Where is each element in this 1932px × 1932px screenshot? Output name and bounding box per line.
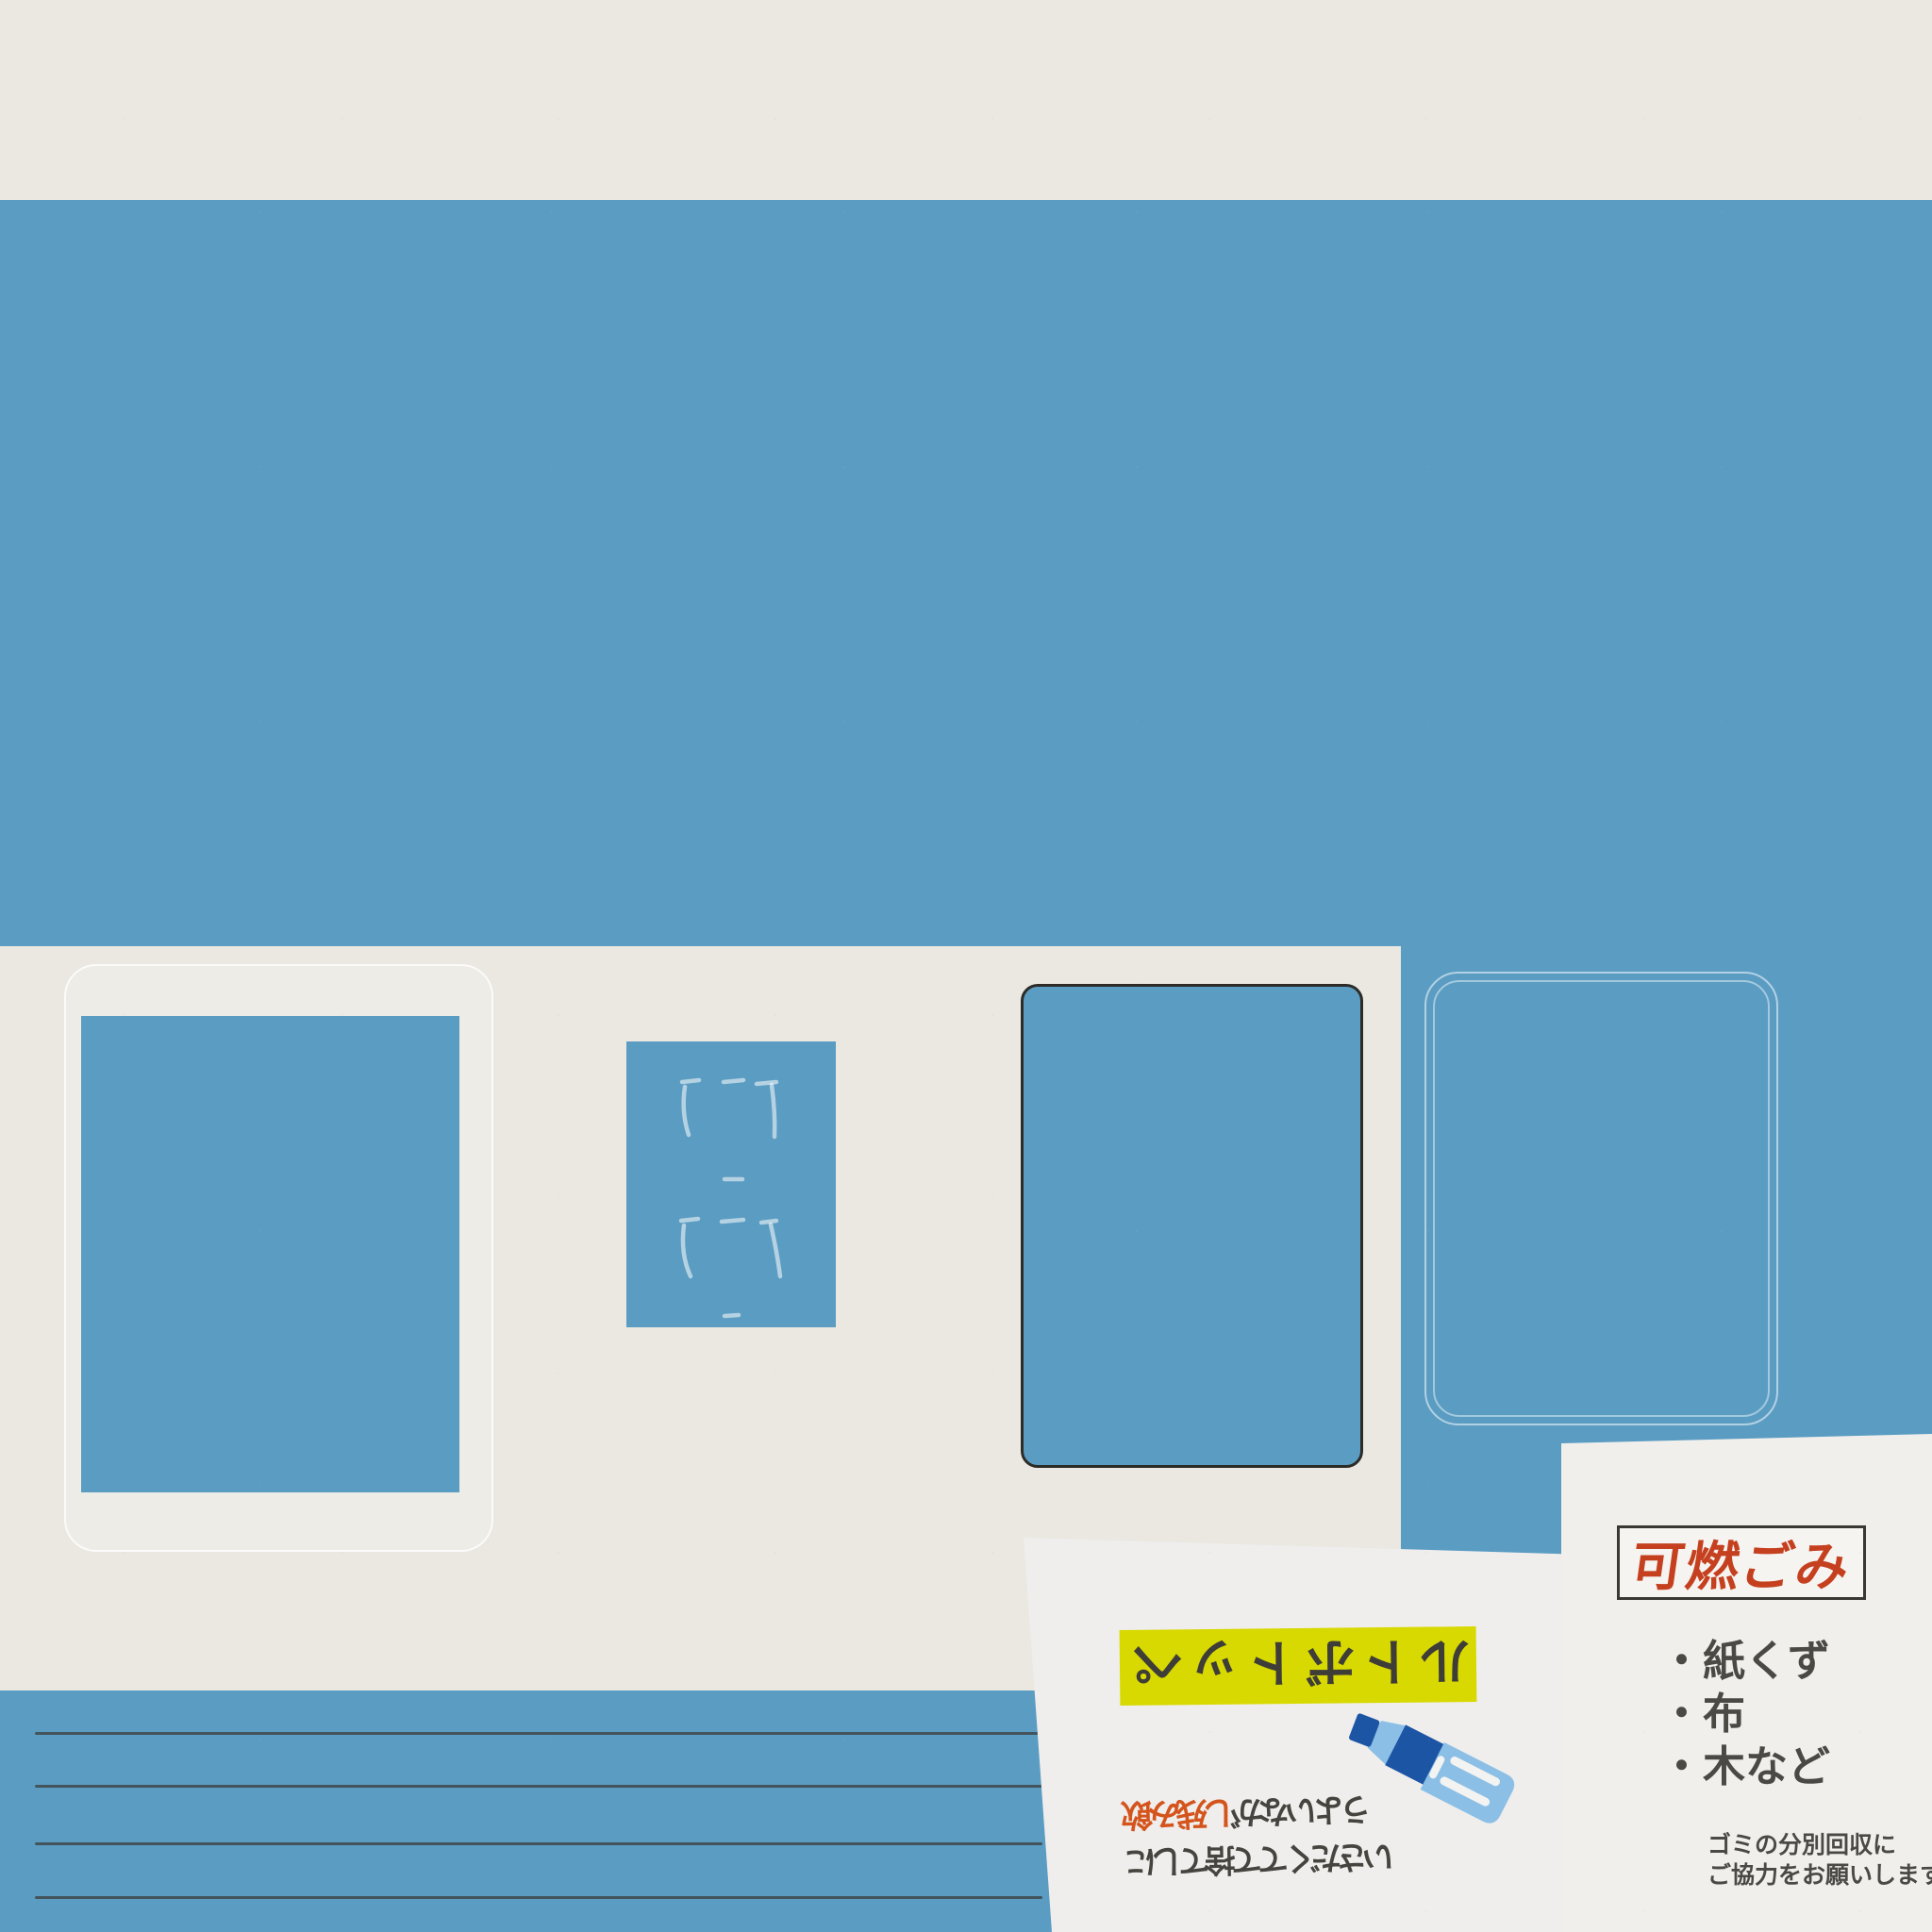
blue-wall-band xyxy=(0,200,1932,946)
pencil-line xyxy=(35,1785,1042,1788)
footer-line1: ゴミの分別回収に xyxy=(1707,1830,1932,1860)
burnable-sign-footer: ゴミの分別回収に ご協力をお願いします xyxy=(1707,1830,1932,1890)
note-highlight: 飲み残し xyxy=(1125,1800,1236,1839)
pet-bottle-icon xyxy=(1343,1709,1541,1870)
list-item: ・木など xyxy=(1660,1732,1830,1785)
pet-bottle-sign-banner: ペットボトル xyxy=(1120,1626,1477,1706)
pet-sign-note-line1: 飲み残しがないよう xyxy=(1124,1789,1372,1841)
pencil-line xyxy=(35,1842,1042,1845)
list-item-label: 木など xyxy=(1703,1742,1830,1790)
pencil-line xyxy=(35,1732,1042,1735)
wall-collage-scene: { "colors": { "wall_blue": "#5b9cc2", "w… xyxy=(0,0,1932,1932)
list-item-label: 布 xyxy=(1703,1690,1745,1738)
chalk-outline-frame xyxy=(1424,972,1778,1425)
pencil-line xyxy=(35,1896,1042,1899)
bullet-dot: ・ xyxy=(1660,1690,1703,1738)
chalk-outline-frame-inner xyxy=(1433,980,1770,1417)
burnable-sign-item-list: ・紙くず ・布 ・木など xyxy=(1660,1626,1830,1785)
footer-line2: ご協力をお願いします xyxy=(1707,1860,1932,1890)
chalk-marks xyxy=(626,1041,836,1327)
list-item-label: 紙くず xyxy=(1703,1637,1830,1685)
burnable-sign-title: 可燃ごみ xyxy=(1626,1524,1856,1601)
burnable-sign-title-box: 可燃ごみ xyxy=(1617,1525,1866,1600)
framed-blue-poster xyxy=(1021,984,1363,1468)
list-item: ・紙くず xyxy=(1660,1626,1830,1679)
small-blue-poster xyxy=(626,1041,836,1327)
large-blue-poster xyxy=(81,1016,459,1492)
list-item: ・布 xyxy=(1660,1679,1830,1732)
bullet-dot: ・ xyxy=(1660,1742,1703,1790)
pet-banner-label: ペットボトル xyxy=(1125,1627,1472,1706)
bullet-dot: ・ xyxy=(1660,1637,1703,1685)
